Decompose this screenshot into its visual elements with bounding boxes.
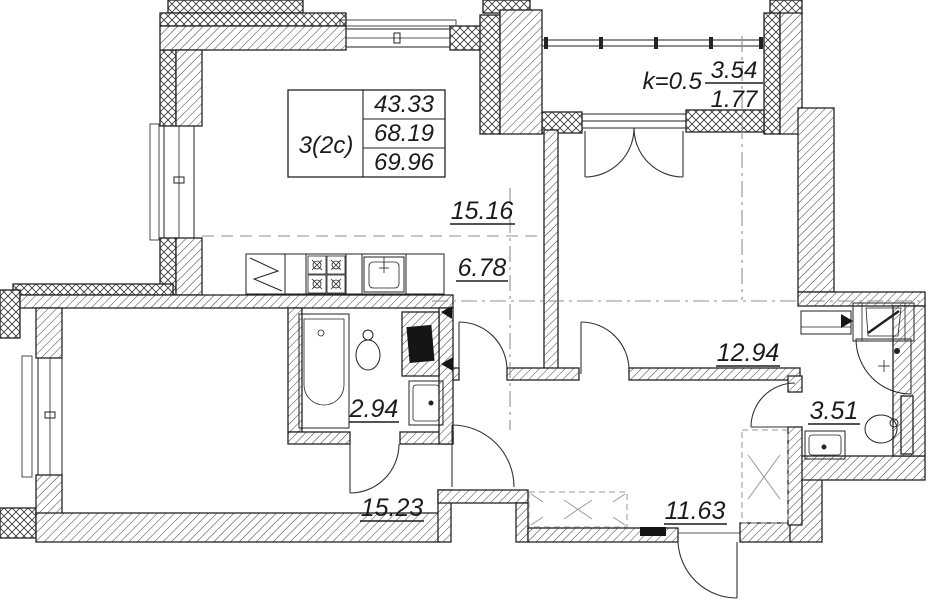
floor-plan-page: 15.16 6.78 12.94 2.94 3.51 15.23 11.63 3… xyxy=(0,0,929,600)
unit-total-area: 69.96 xyxy=(374,149,435,176)
balcony-coefficient: k=0.5 xyxy=(643,68,703,95)
unit-type-label: 3(2c) xyxy=(299,132,354,159)
room-area-entry: 11.63 xyxy=(665,497,726,525)
room-area-bath-main: 3.51 xyxy=(810,397,859,425)
room-area-bedroom-left: 15.23 xyxy=(361,494,424,522)
vent-shaft-duct xyxy=(406,325,434,363)
room-area-bath-small: 2.94 xyxy=(349,395,399,423)
unit-title-block: 3(2c) 43.33 68.19 69.96 xyxy=(288,90,445,177)
room-area-living: 15.16 xyxy=(451,197,514,225)
balcony-area-full: 3.54 xyxy=(711,57,758,84)
unit-living-area: 43.33 xyxy=(374,91,435,118)
wall-marker xyxy=(640,527,666,536)
unit-area: 68.19 xyxy=(374,120,434,147)
room-area-bedroom-right: 12.94 xyxy=(717,339,780,367)
floor-plan-drawing: 15.16 6.78 12.94 2.94 3.51 15.23 11.63 3… xyxy=(0,0,929,600)
balcony-area-reduced: 1.77 xyxy=(711,86,759,113)
room-area-hall: 6.78 xyxy=(458,254,507,282)
